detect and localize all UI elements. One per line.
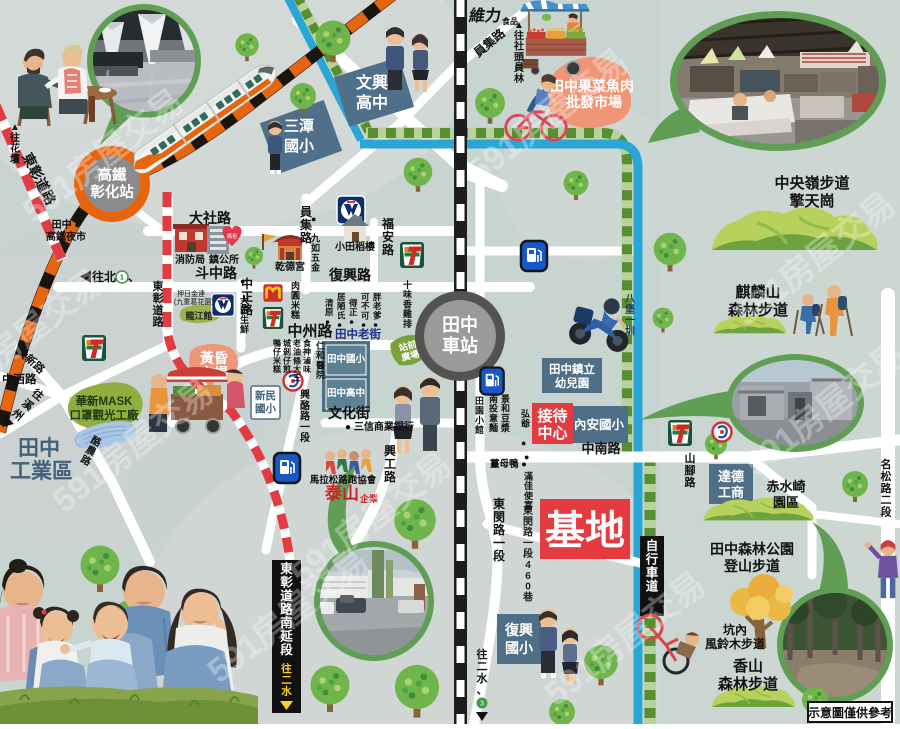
svg-text:往二水、: 往二水、 xyxy=(477,647,489,697)
svg-text:薑母鴨 ●: 薑母鴨 ● xyxy=(490,458,527,470)
svg-text:文興: 文興 xyxy=(356,73,388,92)
svg-text:田園小館: 田園小館 xyxy=(474,396,484,435)
svg-text:擎天崗: 擎天崗 xyxy=(789,192,834,210)
svg-text:東閔路一段: 東閔路一段 xyxy=(493,496,506,563)
svg-text:肉圓米糕: 肉圓米糕 xyxy=(290,280,301,320)
svg-text:消防局: 消防局 xyxy=(175,253,205,266)
svg-text:坑內: 坑內 xyxy=(723,622,747,637)
svg-text:彰化站: 彰化站 xyxy=(90,183,134,201)
svg-text:往二水: 往二水 xyxy=(280,662,292,698)
svg-text:1: 1 xyxy=(120,275,124,282)
svg-text:媽祖: 媽祖 xyxy=(227,233,237,240)
svg-text:森林步道: 森林步道 xyxy=(718,675,778,693)
svg-text:福安路: 福安路 xyxy=(381,216,395,257)
svg-text:達德: 達德 xyxy=(718,469,744,484)
svg-text:文化街: 文化街 xyxy=(328,405,370,421)
svg-text:老油條大王: 老油條大王 xyxy=(292,338,301,383)
svg-text:泰山: 泰山 xyxy=(325,483,359,503)
svg-text:黃昏: 黃昏 xyxy=(199,350,228,366)
svg-text:高中: 高中 xyxy=(356,93,388,112)
svg-text:山腳路: 山腳路 xyxy=(685,451,697,489)
svg-text:▲往社頭員林: ▲往社頭員林 xyxy=(513,20,525,85)
svg-text:基地: 基地 xyxy=(545,509,625,553)
svg-text:(九重葛花園): (九重葛花園) xyxy=(174,297,214,306)
svg-text:3: 3 xyxy=(480,701,484,708)
svg-text:中央嶺步道: 中央嶺步道 xyxy=(774,174,849,192)
svg-text:幼兒園: 幼兒園 xyxy=(555,376,590,390)
svg-text:田中森林公園: 田中森林公園 xyxy=(710,541,794,557)
svg-text:十味香雞排: 十味香雞排 xyxy=(402,279,413,329)
svg-text:興酪路一段: 興酪路一段 xyxy=(300,388,311,444)
svg-text:田中高中: 田中高中 xyxy=(327,387,365,399)
svg-text:鴨仔米糕: 鴨仔米糕 xyxy=(272,338,282,374)
svg-text:復興: 復興 xyxy=(504,622,533,638)
svg-text:田中: 田中 xyxy=(18,437,60,460)
svg-text:新民: 新民 xyxy=(255,389,276,402)
svg-text:香山: 香山 xyxy=(733,657,763,675)
svg-text:中西路: 中西路 xyxy=(2,372,37,386)
svg-text:田中: 田中 xyxy=(442,314,478,335)
svg-text:華新MASK: 華新MASK xyxy=(76,394,134,408)
svg-text:國小: 國小 xyxy=(505,640,533,656)
svg-text:示意圖僅供參考: 示意圖僅供參考 xyxy=(807,705,892,720)
svg-text:馬拉松路跑協會: 馬拉松路跑協會 xyxy=(309,474,377,486)
svg-text:中南路: 中南路 xyxy=(581,441,621,456)
svg-text:● 三信商業銀行: ● 三信商業銀行 xyxy=(345,420,414,433)
svg-text:八堡一圳: 八堡一圳 xyxy=(624,293,636,337)
svg-text:風鈴木步道: 風鈴木步道 xyxy=(705,636,765,651)
svg-text:龍江館: 龍江館 xyxy=(185,310,212,321)
svg-text:城剝仔煎: 城剝仔煎 xyxy=(283,338,291,374)
svg-text:景和豆漿: 景和豆漿 xyxy=(500,394,511,433)
svg-text:田中 ●: 田中 ● xyxy=(52,218,81,231)
svg-text:自行車道: 自行車道 xyxy=(645,538,659,594)
svg-text:田中國小: 田中國小 xyxy=(327,353,366,365)
svg-text:接待: 接待 xyxy=(537,407,567,425)
svg-text:國小: 國小 xyxy=(255,402,276,415)
svg-text:鎮公所: 鎮公所 xyxy=(209,253,239,266)
svg-text:維力: 維力 xyxy=(468,6,503,25)
svg-text:▲往花壇: ▲往花壇 xyxy=(10,122,20,165)
svg-text:中心: 中心 xyxy=(537,424,567,442)
svg-text:三潭: 三潭 xyxy=(284,118,314,135)
svg-text:南投意麵: 南投意麵 xyxy=(488,393,498,433)
svg-text:田中鎮立: 田中鎮立 xyxy=(549,362,595,376)
svg-text:內安國小: 內安國小 xyxy=(574,417,625,432)
svg-text:國小: 國小 xyxy=(284,138,314,155)
svg-text:食神滷味: 食神滷味 xyxy=(303,338,312,374)
svg-text:赤水崎: 赤水崎 xyxy=(766,479,805,494)
svg-text:仁和醫院: 仁和醫院 xyxy=(315,340,325,380)
svg-text:名松路二段: 名松路二段 xyxy=(881,457,893,519)
svg-text:口罩觀光工廠: 口罩觀光工廠 xyxy=(70,408,139,422)
svg-text:小田稻樓: 小田稻樓 xyxy=(334,240,375,253)
svg-text:乾德宮: 乾德宮 xyxy=(275,260,305,273)
svg-text:押日金連: 押日金連 xyxy=(177,289,205,298)
svg-text:登山步道: 登山步道 xyxy=(723,558,780,574)
svg-text:大社路: 大社路 xyxy=(189,210,232,226)
svg-text:車站: 車站 xyxy=(442,335,478,356)
svg-text:復興路: 復興路 xyxy=(328,267,372,283)
svg-text:高鐵夜市: 高鐵夜市 xyxy=(46,230,86,243)
svg-text:斗中路: 斗中路 xyxy=(195,265,238,281)
svg-text:園區: 園區 xyxy=(773,495,799,510)
svg-text:東彰道路: 東彰道路 xyxy=(153,279,165,329)
svg-text:工商: 工商 xyxy=(718,485,744,500)
